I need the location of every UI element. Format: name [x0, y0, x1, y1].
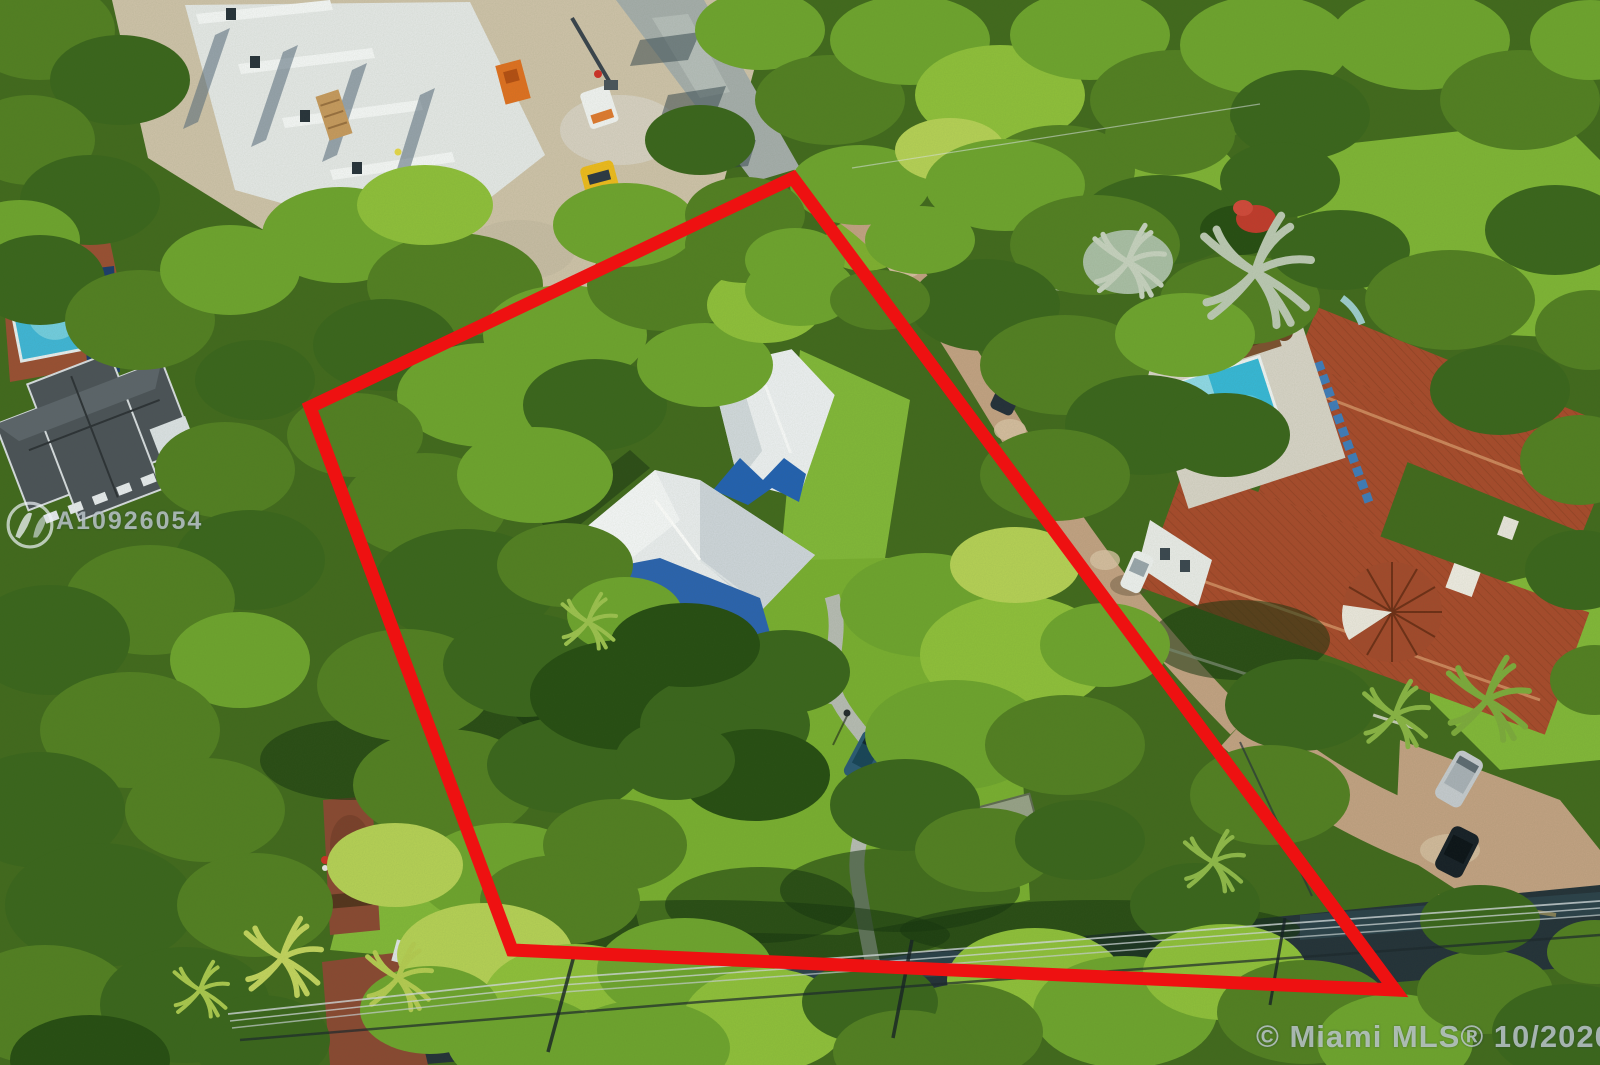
mls-logo-icon: [5, 500, 55, 550]
aerial-photo: [0, 0, 1600, 1065]
listing-id-watermark: A10926054: [56, 507, 203, 536]
grain-overlay: [0, 0, 1600, 1065]
copyright-watermark: © Miami MLS® 10/2020: [1256, 1019, 1600, 1055]
aerial-photo-stage: A10926054 © Miami MLS® 10/2020: [0, 0, 1600, 1065]
